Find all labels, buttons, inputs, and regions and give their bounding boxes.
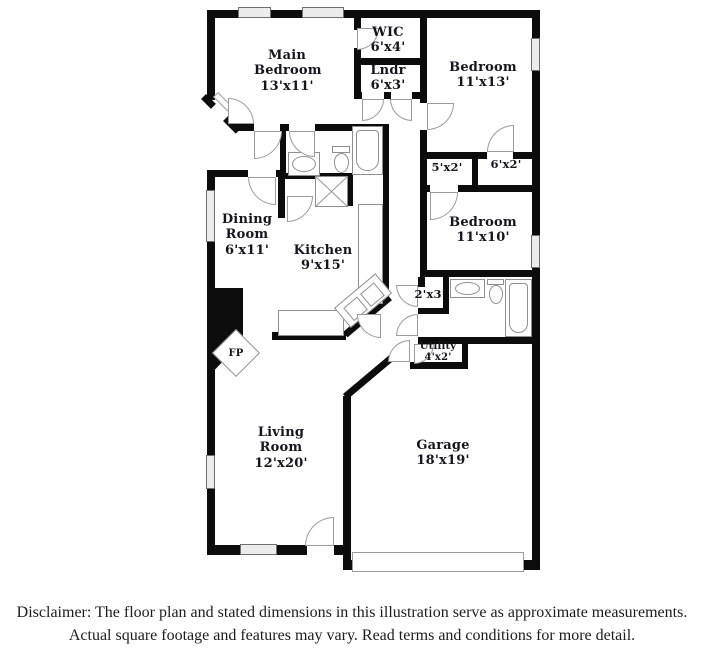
room-label-living: Living Room 12'x20' <box>249 425 313 471</box>
sink <box>292 156 316 172</box>
fireplace-label: FP <box>219 348 253 359</box>
toilet-tank <box>332 146 350 153</box>
bathtub-inner <box>356 130 379 171</box>
wall-bedroom-left <box>420 158 427 276</box>
room-label-dining: Dining Room 6'x11' <box>219 212 275 258</box>
room-dims: 11'x13' <box>433 75 533 90</box>
door-arc-garage-entry <box>388 340 410 362</box>
room-name: Utility <box>412 341 464 352</box>
door-arc-hall <box>254 131 282 159</box>
door-arc-laundry <box>390 99 412 121</box>
wall-kitchen-right <box>383 124 389 302</box>
door-arc-closet <box>487 125 514 152</box>
room-dims: 4'x2' <box>412 352 464 363</box>
toilet <box>334 153 349 173</box>
wall-closet-bottom <box>458 185 532 192</box>
room-dims: 9'x15' <box>283 258 363 273</box>
wall-bedroom-bottom <box>420 270 532 277</box>
window <box>302 7 344 18</box>
room-name: WIC <box>360 25 416 40</box>
room-dims: 6'x11' <box>219 243 275 258</box>
wall-hall <box>418 277 425 287</box>
room-dims: 6'x4' <box>360 40 416 55</box>
room-label-garage: Garage 18'x19' <box>393 438 493 469</box>
wall-bedroom-left <box>420 10 427 103</box>
kitchen-island <box>278 310 344 336</box>
toilet <box>489 285 503 304</box>
room-label-kitchen: Kitchen 9'x15' <box>283 243 363 274</box>
room-name: Main Bedroom <box>254 48 320 79</box>
door-arc-living <box>305 517 334 546</box>
bathtub-inner <box>509 283 528 333</box>
room-dims: 2'x3' <box>409 288 451 302</box>
door-arc-hall-living <box>357 314 381 338</box>
closet-label: 6'x2' <box>482 158 530 172</box>
window <box>206 190 215 242</box>
floor-plan-canvas: FP Main Bedroom 13'x11' WIC 6'x4' Lndr 6… <box>0 0 704 656</box>
garage-door <box>352 552 524 572</box>
room-name: Garage <box>393 438 493 453</box>
wall-garage-left <box>343 396 351 570</box>
wall <box>236 124 254 131</box>
room-label-main-bedroom: Main Bedroom 13'x11' <box>254 48 320 94</box>
room-dims: 5'x2' <box>424 161 470 175</box>
disclaimer-text: Disclaimer: The floor plan and stated di… <box>0 602 704 647</box>
window <box>206 455 215 489</box>
disclaimer-line-2: Actual square footage and features may v… <box>0 625 704 648</box>
door-arc-bath <box>396 314 418 336</box>
wall-left-upper <box>207 10 215 100</box>
room-dims: 18'x19' <box>393 453 493 468</box>
wall-diagonal-garage <box>343 355 393 399</box>
room-name: Dining Room <box>219 212 275 243</box>
window <box>240 544 277 555</box>
room-label-laundry: Lndr 6'x3' <box>360 63 416 94</box>
room-dims: 13'x11' <box>254 79 320 94</box>
room-name: Lndr <box>360 63 416 78</box>
door-arc-bedroom <box>427 103 454 130</box>
disclaimer-line-1: Disclaimer: The floor plan and stated di… <box>0 602 704 625</box>
pantry <box>315 176 348 207</box>
wall-right <box>532 10 540 570</box>
closet-label: 5'x2' <box>424 161 470 175</box>
room-label-utility: Utility 4'x2' <box>412 341 464 363</box>
window <box>238 7 271 18</box>
room-name: Kitchen <box>283 243 363 258</box>
wall-closet-small <box>418 308 449 314</box>
sink <box>455 282 480 295</box>
door-arc-kitchen <box>287 196 313 222</box>
wall-dining-top <box>207 170 248 177</box>
room-dims: 11'x10' <box>433 230 533 245</box>
door-arc-main-bedroom <box>228 98 254 124</box>
room-label-bedroom-mid-right: Bedroom 11'x10' <box>433 215 533 246</box>
room-dims: 6'x2' <box>482 158 530 172</box>
room-dims: 6'x3' <box>360 78 416 93</box>
door-arc-laundry <box>362 99 384 121</box>
wall-closet-bottom <box>420 185 430 192</box>
room-name: Living Room <box>249 425 313 456</box>
room-name: FP <box>219 348 253 359</box>
door-arc-dining <box>248 177 276 205</box>
room-name: Bedroom <box>433 215 533 230</box>
wall-dining-kitchen <box>278 172 285 218</box>
room-dims: 12'x20' <box>249 456 313 471</box>
room-label-wic: WIC 6'x4' <box>360 25 416 56</box>
closet-label: 2'x3' <box>409 288 451 302</box>
room-label-bedroom-top-right: Bedroom 11'x13' <box>433 60 533 91</box>
room-name: Bedroom <box>433 60 533 75</box>
